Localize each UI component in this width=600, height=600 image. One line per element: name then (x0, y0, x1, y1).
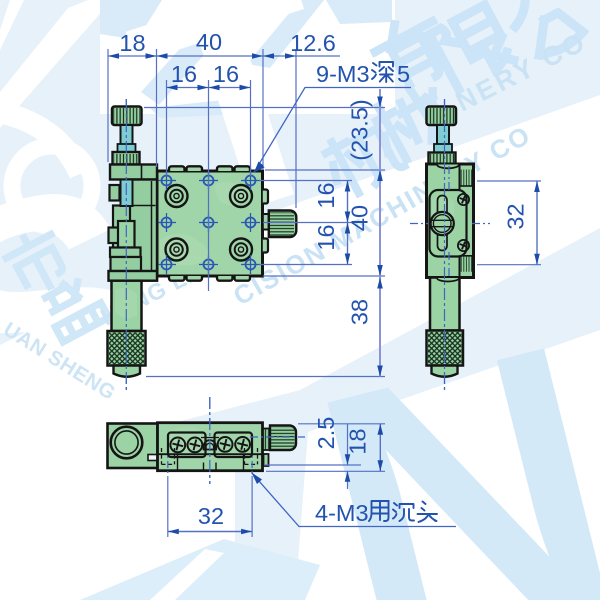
svg-text:12.6: 12.6 (290, 30, 336, 56)
svg-text:18: 18 (119, 30, 145, 56)
svg-text:16: 16 (313, 224, 339, 250)
svg-text:38: 38 (347, 299, 373, 325)
svg-text:5: 5 (397, 61, 410, 87)
svg-text:40: 40 (196, 29, 222, 55)
svg-text:18: 18 (345, 428, 371, 454)
svg-text:32: 32 (503, 203, 529, 229)
svg-text:32: 32 (198, 503, 224, 529)
svg-text:16: 16 (213, 61, 239, 87)
svg-text:2.5: 2.5 (313, 417, 339, 450)
svg-text:40: 40 (347, 205, 373, 231)
svg-text:(23.5): (23.5) (347, 99, 373, 160)
svg-text:4-M3: 4-M3 (315, 500, 369, 526)
svg-text:16: 16 (171, 61, 197, 87)
svg-text:9-M3: 9-M3 (316, 61, 370, 87)
svg-text:16: 16 (313, 182, 339, 208)
